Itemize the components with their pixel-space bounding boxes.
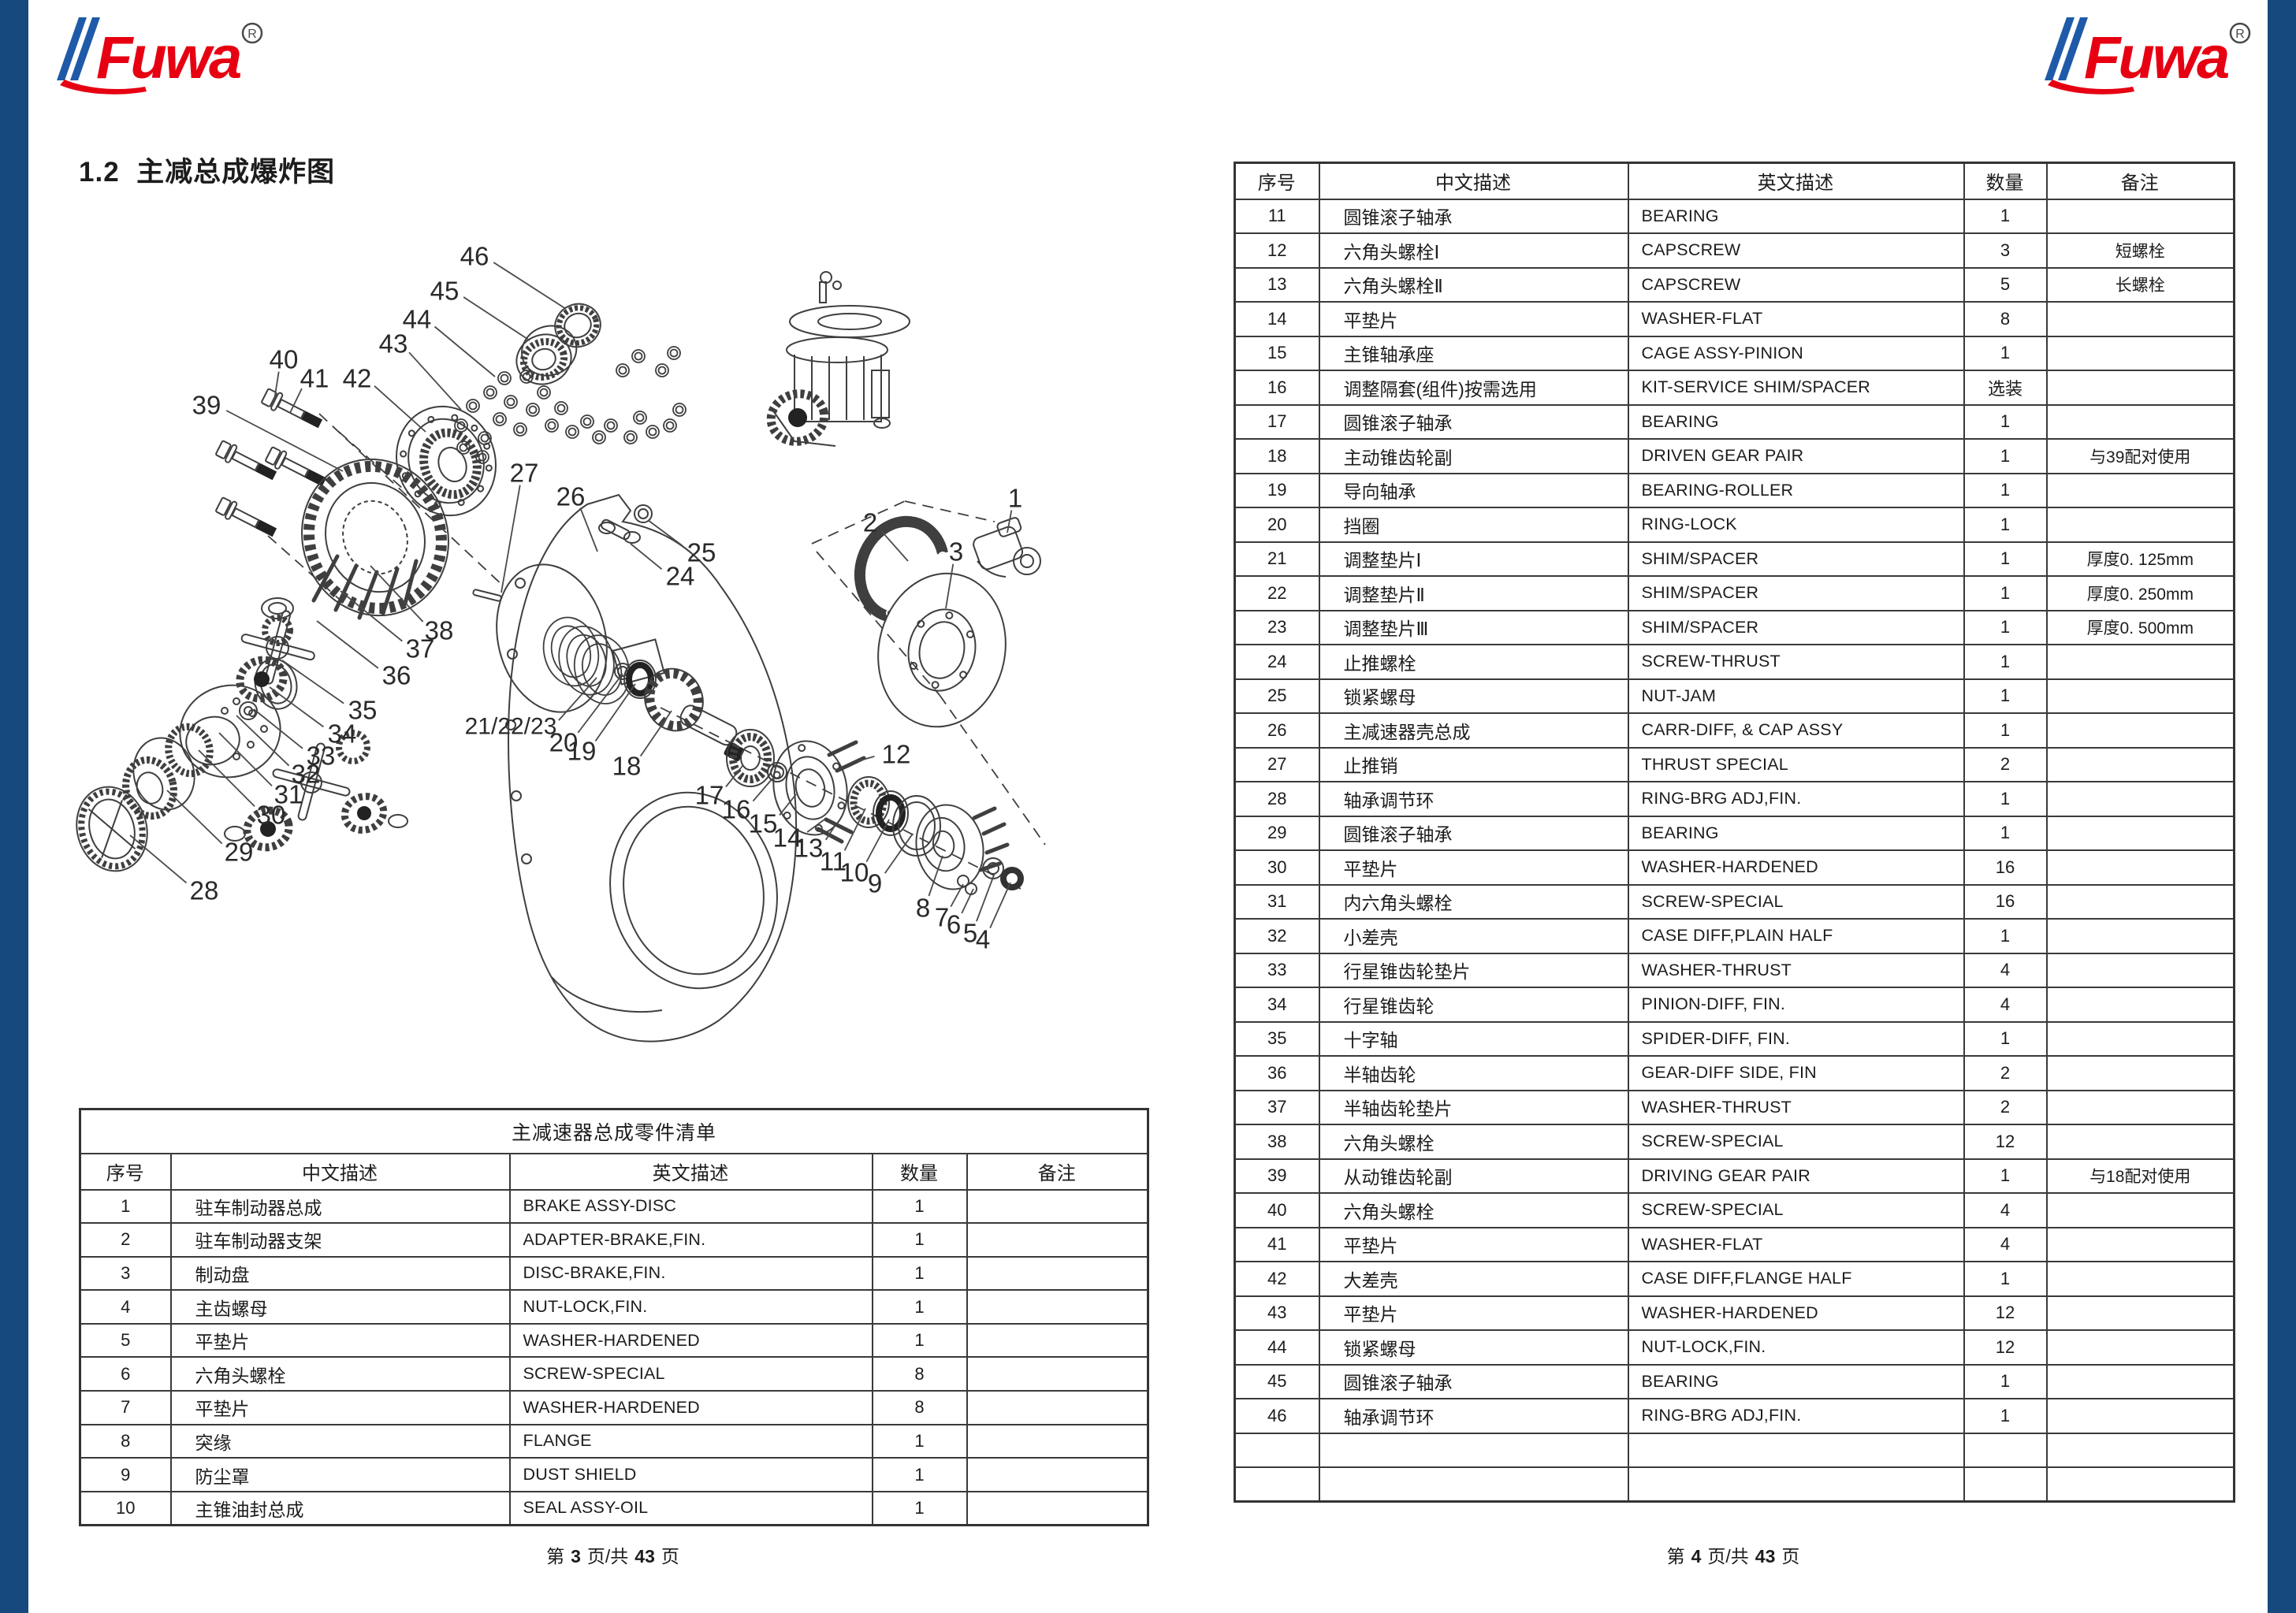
part-number-label: 16: [722, 795, 751, 824]
table-cell: 1: [873, 1257, 967, 1291]
table-cell: 与18配对使用: [2047, 1159, 2235, 1194]
part-number-label: 2: [863, 508, 877, 537]
table-cell: [2047, 370, 2235, 405]
table-cell: WASHER-FLAT: [1628, 302, 1964, 336]
table-cell: 调整垫片Ⅱ: [1319, 576, 1628, 611]
table-row: 1驻车制动器总成BRAKE ASSY-DISC1: [80, 1190, 1148, 1224]
table-cell: WASHER-THRUST: [1628, 953, 1964, 988]
table-cell: WASHER-HARDENED: [510, 1391, 873, 1425]
table-cell: 19: [1235, 474, 1319, 508]
part-number-label: 29: [225, 838, 254, 867]
table-row: [1235, 1467, 2235, 1502]
table-cell: 18: [1235, 439, 1319, 474]
table-cell: 平垫片: [1319, 1228, 1628, 1262]
bearing-29: [120, 731, 203, 822]
table-row: 23调整垫片ⅢSHIM/SPACER1厚度0. 500mm: [1235, 611, 2235, 645]
footer-text: 页/共: [587, 1546, 628, 1567]
table-cell: 调整垫片Ⅰ: [1319, 542, 1628, 577]
table-cell: 33: [1235, 953, 1319, 988]
table-row: [1235, 1433, 2235, 1468]
table-cell: [2047, 1262, 2235, 1296]
part-number-label: 25: [687, 538, 716, 567]
table-cell: 1: [1964, 199, 2047, 234]
table-header-row: 序号中文描述英文描述数量备注: [1235, 163, 2235, 199]
callout-leader: [631, 544, 662, 569]
table-cell: 圆锥滚子轴承: [1319, 199, 1628, 234]
table-row: 21调整垫片ⅠSHIM/SPACER1厚度0. 125mm: [1235, 542, 2235, 577]
table-row: 3制动盘DISC-BRAKE,FIN.1: [80, 1257, 1148, 1291]
table-row: 41平垫片WASHER-FLAT4: [1235, 1228, 2235, 1262]
table-cell: [967, 1223, 1148, 1257]
table-cell: [2047, 1022, 2235, 1057]
table-cell: [2047, 645, 2235, 679]
table-cell: 轴承调节环: [1319, 1399, 1628, 1433]
table-row: 33行星锥齿轮垫片WASHER-THRUST4: [1235, 953, 2235, 988]
table-cell: 22: [1235, 576, 1319, 611]
table-cell: 8: [80, 1425, 171, 1459]
table-row: 44锁紧螺母NUT-LOCK,FIN.12: [1235, 1330, 2235, 1365]
table-cell: [1235, 1467, 1319, 1502]
table-cell: [2047, 199, 2235, 234]
part-number-label: 12: [882, 740, 911, 769]
table-cell: 内六角头螺栓: [1319, 885, 1628, 920]
callout-leader: [493, 262, 566, 309]
table-cell: FLANGE: [510, 1425, 873, 1459]
table-cell: 1: [1964, 542, 2047, 577]
table-cell: 1: [1964, 782, 2047, 816]
pinion-bearing: [508, 318, 586, 392]
table-cell: [1319, 1433, 1628, 1468]
table-cell: SHIM/SPACER: [1628, 576, 1964, 611]
column-header: 英文描述: [510, 1154, 873, 1190]
table-cell: 调整垫片Ⅲ: [1319, 611, 1628, 645]
table-row: 18主动锥齿轮副DRIVEN GEAR PAIR1与39配对使用: [1235, 439, 2235, 474]
table-cell: SCREW-SPECIAL: [510, 1357, 873, 1391]
table-cell: GEAR-DIFF SIDE, FIN: [1628, 1056, 1964, 1091]
table-cell: WASHER-HARDENED: [510, 1324, 873, 1358]
brand-name: Fuwa: [2084, 24, 2229, 91]
section-heading: 1.2 主减总成爆炸图: [79, 150, 335, 190]
footer-page-number: 4: [1691, 1546, 1702, 1567]
table-cell: SCREW-THRUST: [1628, 645, 1964, 679]
table-cell: [2047, 885, 2235, 920]
table-cell: 1: [1964, 1262, 2047, 1296]
table-row: 8突缘FLANGE1: [80, 1425, 1148, 1459]
table-cell: 半轴齿轮垫片: [1319, 1091, 1628, 1125]
table-row: 5平垫片WASHER-HARDENED1: [80, 1324, 1148, 1358]
table-cell: 11: [1235, 199, 1319, 234]
table-row: 2驻车制动器支架ADAPTER-BRAKE,FIN.1: [80, 1223, 1148, 1257]
ring-gear: [280, 439, 470, 637]
table-cell: THRUST SPECIAL: [1628, 748, 1964, 782]
left-parts-table: 主减速器总成零件清单 序号中文描述英文描述数量备注1驻车制动器总成BRAKE A…: [79, 1108, 1149, 1526]
table-cell: 1: [873, 1223, 967, 1257]
table-cell: 1: [1964, 919, 2047, 953]
table-cell: 主锥轴承座: [1319, 336, 1628, 371]
part-number-label: 18: [612, 752, 642, 781]
table-cell: 36: [1235, 1056, 1319, 1091]
brand-name: Fuwa: [96, 24, 241, 91]
table-cell: 1: [1964, 1159, 2047, 1194]
table-cell: BEARING: [1628, 405, 1964, 440]
table-cell: [2047, 507, 2235, 542]
table-cell: CAPSCREW: [1628, 233, 1964, 268]
table-cell: [1628, 1433, 1964, 1468]
table-cell: [2047, 1365, 2235, 1399]
table-cell: 32: [1235, 919, 1319, 953]
table-cell: SPIDER-DIFF, FIN.: [1628, 1022, 1964, 1057]
table-cell: 16: [1964, 885, 2047, 920]
column-header: 中文描述: [171, 1154, 510, 1190]
table-cell: 45: [1235, 1365, 1319, 1399]
table-row: 34行星锥齿轮PINION-DIFF, FIN.4: [1235, 987, 2235, 1022]
table-row: 39从动锥齿轮副DRIVING GEAR PAIR1与18配对使用: [1235, 1159, 2235, 1194]
table-cell: 锁紧螺母: [1319, 1330, 1628, 1365]
table-cell: 十字轴: [1319, 1022, 1628, 1057]
table-cell: 圆锥滚子轴承: [1319, 405, 1628, 440]
table-cell: [2047, 405, 2235, 440]
table-cell: 1: [1964, 474, 2047, 508]
table-cell: 主动锥齿轮副: [1319, 439, 1628, 474]
table-cell: 1: [1964, 507, 2047, 542]
table-cell: 六角头螺栓: [1319, 1193, 1628, 1228]
table-cell: 44: [1235, 1330, 1319, 1365]
table-cell: 平垫片: [1319, 302, 1628, 336]
footer-text: 页/共: [1707, 1546, 1748, 1567]
table-row: 15主锥轴承座CAGE ASSY-PINION1: [1235, 336, 2235, 371]
callout-leader: [167, 790, 222, 844]
table-cell: [967, 1290, 1148, 1324]
table-cell: 调整隔套(组件)按需选用: [1319, 370, 1628, 405]
table-row: 35十字轴SPIDER-DIFF, FIN.1: [1235, 1022, 2235, 1057]
table-cell: 厚度0. 250mm: [2047, 576, 2235, 611]
table-cell: 1: [873, 1458, 967, 1492]
table-cell: 39: [1235, 1159, 1319, 1194]
table-cell: 止推螺栓: [1319, 645, 1628, 679]
table-cell: 1: [80, 1190, 171, 1224]
callout-leader: [977, 873, 995, 921]
table-cell: [2047, 1228, 2235, 1262]
table-row: 26主减速器壳总成CARR-DIFF, & CAP ASSY1: [1235, 713, 2235, 748]
table-cell: CARR-DIFF, & CAP ASSY: [1628, 713, 1964, 748]
column-header: 数量: [1964, 163, 2047, 199]
table-cell: 37: [1235, 1091, 1319, 1125]
table-cell: [2047, 1399, 2235, 1433]
table-cell: CASE DIFF,FLANGE HALF: [1628, 1262, 1964, 1296]
jam-nut: [634, 505, 652, 522]
part-number-label: 11: [820, 847, 847, 876]
table-row: 9防尘罩DUST SHIELD1: [80, 1458, 1148, 1492]
table-cell: [967, 1190, 1148, 1224]
table-cell: 圆锥滚子轴承: [1319, 1365, 1628, 1399]
table-cell: 1: [1964, 611, 2047, 645]
part-number-label: 1: [1008, 484, 1022, 513]
table-row: 11圆锥滚子轴承BEARING1: [1235, 199, 2235, 234]
table-cell: 1: [1964, 576, 2047, 611]
table-cell: 挡圈: [1319, 507, 1628, 542]
table-cell: 1: [873, 1492, 967, 1526]
spider-gear-cluster: [225, 598, 407, 853]
flange-nut: [1000, 867, 1024, 890]
brake-caliper: [972, 517, 1040, 577]
part-number-label: 8: [916, 894, 930, 923]
table-cell: PINION-DIFF, FIN.: [1628, 987, 1964, 1022]
table-row: 16调整隔套(组件)按需选用KIT-SERVICE SHIM/SPACER选装: [1235, 370, 2235, 405]
table-cell: 小差壳: [1319, 919, 1628, 953]
table-cell: BEARING-ROLLER: [1628, 474, 1964, 508]
part-number-label: 44: [403, 305, 432, 334]
table-cell: [2047, 302, 2235, 336]
table-cell: [1964, 1433, 2047, 1468]
table-cell: BEARING: [1628, 1365, 1964, 1399]
table-cell: SCREW-SPECIAL: [1628, 1124, 1964, 1159]
part-number-label: 9: [868, 869, 882, 898]
table-cell: [967, 1324, 1148, 1358]
table-row: 37半轴齿轮垫片WASHER-THRUST2: [1235, 1091, 2235, 1125]
table-cell: 大差壳: [1319, 1262, 1628, 1296]
table-row: 17圆锥滚子轴承BEARING1: [1235, 405, 2235, 440]
table-cell: WASHER-HARDENED: [1628, 850, 1964, 885]
table-cell: NUT-JAM: [1628, 679, 1964, 714]
table-cell: 平垫片: [171, 1391, 510, 1425]
table-cell: [2047, 336, 2235, 371]
callout-leader: [317, 621, 378, 668]
table-cell: 选装: [1964, 370, 2047, 405]
table-cell: [2047, 1467, 2235, 1502]
table-cell: 导向轴承: [1319, 474, 1628, 508]
table-cell: 12: [1235, 233, 1319, 268]
table-cell: 10: [80, 1492, 171, 1526]
table-cell: 1: [1964, 336, 2047, 371]
callout-leader: [928, 856, 943, 896]
table-cell: 1: [873, 1190, 967, 1224]
table-cell: 六角头螺栓Ⅰ: [1319, 233, 1628, 268]
table-cell: 38: [1235, 1124, 1319, 1159]
diagram-linework: [68, 272, 1045, 1042]
table-cell: DISC-BRAKE,FIN.: [510, 1257, 873, 1291]
table-cell: RING-LOCK: [1628, 507, 1964, 542]
table-cell: 4: [1964, 953, 2047, 988]
table-cell: [967, 1425, 1148, 1459]
table-cell: 与39配对使用: [2047, 439, 2235, 474]
table-row: 22调整垫片ⅡSHIM/SPACER1厚度0. 250mm: [1235, 576, 2235, 611]
table-cell: 13: [1235, 268, 1319, 303]
table-cell: 8: [1964, 302, 2047, 336]
left-edge-bar: [0, 0, 28, 1613]
table-cell: 半轴齿轮: [1319, 1056, 1628, 1091]
table-cell: 40: [1235, 1193, 1319, 1228]
table-cell: 长螺栓: [2047, 268, 2235, 303]
table-row: 13六角头螺栓ⅡCAPSCREW5长螺栓: [1235, 268, 2235, 303]
right-edge-bar: [2268, 0, 2296, 1613]
table-header-row: 序号中文描述英文描述数量备注: [80, 1154, 1148, 1190]
table-cell: WASHER-FLAT: [1628, 1228, 1964, 1262]
table-cell: 厚度0. 500mm: [2047, 611, 2235, 645]
callout-leader: [501, 485, 520, 593]
part-number-label: 7: [935, 903, 949, 932]
brake-disc: [864, 562, 1019, 739]
table-cell: [2047, 919, 2235, 953]
table-cell: 锁紧螺母: [1319, 679, 1628, 714]
table-cell: SCREW-SPECIAL: [1628, 885, 1964, 920]
table-cell: 行星锥齿轮: [1319, 987, 1628, 1022]
table-cell: 17: [1235, 405, 1319, 440]
table-cell: WASHER-THRUST: [1628, 1091, 1964, 1125]
table-cell: 1: [1964, 645, 2047, 679]
part-number-label: 41: [300, 364, 329, 393]
table-cell: 4: [1964, 1193, 2047, 1228]
table-cell: BEARING: [1628, 199, 1964, 234]
table-cell: [1319, 1467, 1628, 1502]
table-cell: 主减速器壳总成: [1319, 713, 1628, 748]
table-cell: 6: [80, 1357, 171, 1391]
footer-page-number: 3: [571, 1546, 581, 1567]
table-cell: 平垫片: [171, 1324, 510, 1358]
table-cell: [2047, 1330, 2235, 1365]
table-cell: [967, 1458, 1148, 1492]
column-header: 序号: [1235, 163, 1319, 199]
column-header: 数量: [873, 1154, 967, 1190]
table-cell: 14: [1235, 302, 1319, 336]
table-cell: CAPSCREW: [1628, 268, 1964, 303]
part-number-label: 35: [348, 696, 378, 725]
table-cell: [2047, 953, 2235, 988]
catalog-spread: { "brand": {"name": "Fuwa", "registered"…: [0, 0, 2296, 1613]
table-cell: 1: [1964, 405, 2047, 440]
shim-stack: [536, 604, 637, 716]
callout-leader: [595, 684, 635, 741]
table-cell: NUT-LOCK,FIN.: [1628, 1330, 1964, 1365]
footer-total-pages: 43: [634, 1546, 655, 1567]
table-cell: 从动锥齿轮副: [1319, 1159, 1628, 1194]
table-cell: [967, 1391, 1148, 1425]
table-cell: 7: [80, 1391, 171, 1425]
table-cell: 35: [1235, 1022, 1319, 1057]
table-row: 40六角头螺栓SCREW-SPECIAL4: [1235, 1193, 2235, 1228]
footer-text: 页: [661, 1546, 679, 1567]
table-cell: 六角头螺栓: [1319, 1124, 1628, 1159]
part-number-label: 46: [460, 242, 489, 271]
part-number-label: 40: [270, 345, 299, 374]
table-cell: 24: [1235, 645, 1319, 679]
table-cell: 31: [1235, 885, 1319, 920]
footer-text: 页: [1781, 1546, 1799, 1567]
table-cell: 1: [1964, 1365, 2047, 1399]
callout-leader: [409, 352, 461, 410]
table-cell: [2047, 850, 2235, 885]
callout-leader: [648, 520, 683, 546]
callout-leader: [866, 820, 889, 862]
table-cell: [2047, 1091, 2235, 1125]
table-cell: 1: [873, 1425, 967, 1459]
table-cell: 主齿螺母: [171, 1290, 510, 1324]
table-cell: 5: [80, 1324, 171, 1358]
table-row: 36半轴齿轮GEAR-DIFF SIDE, FIN2: [1235, 1056, 2235, 1091]
table-cell: 5: [1964, 268, 2047, 303]
table-cell: 28: [1235, 782, 1319, 816]
table-row: 4主齿螺母NUT-LOCK,FIN.1: [80, 1290, 1148, 1324]
column-header: 备注: [967, 1154, 1148, 1190]
table-cell: 轴承调节环: [1319, 782, 1628, 816]
table-cell: 2: [80, 1223, 171, 1257]
table-cell: DRIVING GEAR PAIR: [1628, 1159, 1964, 1194]
table-cell: NUT-LOCK,FIN.: [510, 1290, 873, 1324]
table-cell: 27: [1235, 748, 1319, 782]
table-cell: 主锥油封总成: [171, 1492, 510, 1526]
table-row: 45圆锥滚子轴承BEARING1: [1235, 1365, 2235, 1399]
table-cell: 8: [873, 1391, 967, 1425]
part-number-label: 15: [749, 809, 778, 838]
table-cell: [2047, 1056, 2235, 1091]
fuwa-logo: Fuwa R: [49, 11, 277, 99]
page-footer: 第3页/共43页: [79, 1541, 1147, 1568]
callout-leader: [374, 386, 426, 432]
table-cell: 1: [1964, 679, 2047, 714]
footer-text: 第: [1667, 1546, 1685, 1567]
table-cell: 2: [1964, 1091, 2047, 1125]
part-number-label: 4: [976, 925, 990, 954]
right-parts-table: 序号中文描述英文描述数量备注11圆锥滚子轴承BEARING112六角头螺栓ⅠCA…: [1234, 162, 2235, 1503]
table-cell: 16: [1235, 370, 1319, 405]
table-cell: 12: [1964, 1330, 2047, 1365]
callout-leader: [882, 531, 908, 561]
callout-leader: [951, 884, 963, 907]
table-row: 19导向轴承BEARING-ROLLER1: [1235, 474, 2235, 508]
table-row: 12六角头螺栓ⅠCAPSCREW3短螺栓: [1235, 233, 2235, 268]
table-title-row: 主减速器总成零件清单: [80, 1109, 1148, 1154]
table-cell: CASE DIFF,PLAIN HALF: [1628, 919, 1964, 953]
callout-leader: [946, 564, 953, 608]
table-cell: [1235, 1433, 1319, 1468]
column-header: 中文描述: [1319, 163, 1628, 199]
table-cell: [2047, 474, 2235, 508]
assembled-unit-inset: [765, 272, 910, 448]
callout-leader: [1007, 511, 1011, 533]
footer-total-pages: 43: [1755, 1546, 1776, 1567]
table-cell: SHIM/SPACER: [1628, 611, 1964, 645]
part-number-label: 39: [192, 391, 221, 420]
table-cell: 26: [1235, 713, 1319, 748]
table-cell: 4: [80, 1290, 171, 1324]
registered-mark-letter: R: [2235, 28, 2245, 41]
adj-ring-28: [68, 779, 157, 879]
part-number-label: 45: [430, 277, 460, 306]
table-cell: 防尘罩: [171, 1458, 510, 1492]
table-row: 20挡圈RING-LOCK1: [1235, 507, 2235, 542]
callout-leader: [199, 750, 255, 806]
table-cell: 1: [873, 1290, 967, 1324]
table-cell: 20: [1235, 507, 1319, 542]
table-cell: 圆锥滚子轴承: [1319, 816, 1628, 851]
callout-leader: [435, 326, 495, 377]
table-cell: BRAKE ASSY-DISC: [510, 1190, 873, 1224]
table-cell: 六角头螺栓Ⅱ: [1319, 268, 1628, 303]
table-cell: 3: [80, 1257, 171, 1291]
table-cell: 2: [1964, 748, 2047, 782]
table-cell: 25: [1235, 679, 1319, 714]
table-cell: 8: [873, 1357, 967, 1391]
table-row: 42大差壳CASE DIFF,FLANGE HALF1: [1235, 1262, 2235, 1296]
exploded-diagram: 123456789101112131415161718192021/22/232…: [63, 221, 1080, 1064]
part-number-label: 17: [695, 781, 724, 810]
table-row: 28轴承调节环RING-BRG ADJ,FIN.1: [1235, 782, 2235, 816]
table-cell: 30: [1235, 850, 1319, 885]
table-row: 38六角头螺栓SCREW-SPECIAL12: [1235, 1124, 2235, 1159]
table-cell: 驻车制动器支架: [171, 1223, 510, 1257]
table-cell: 4: [1964, 987, 2047, 1022]
table-cell: 4: [1964, 1228, 2047, 1262]
table-row: 31内六角头螺栓SCREW-SPECIAL16: [1235, 885, 2235, 920]
